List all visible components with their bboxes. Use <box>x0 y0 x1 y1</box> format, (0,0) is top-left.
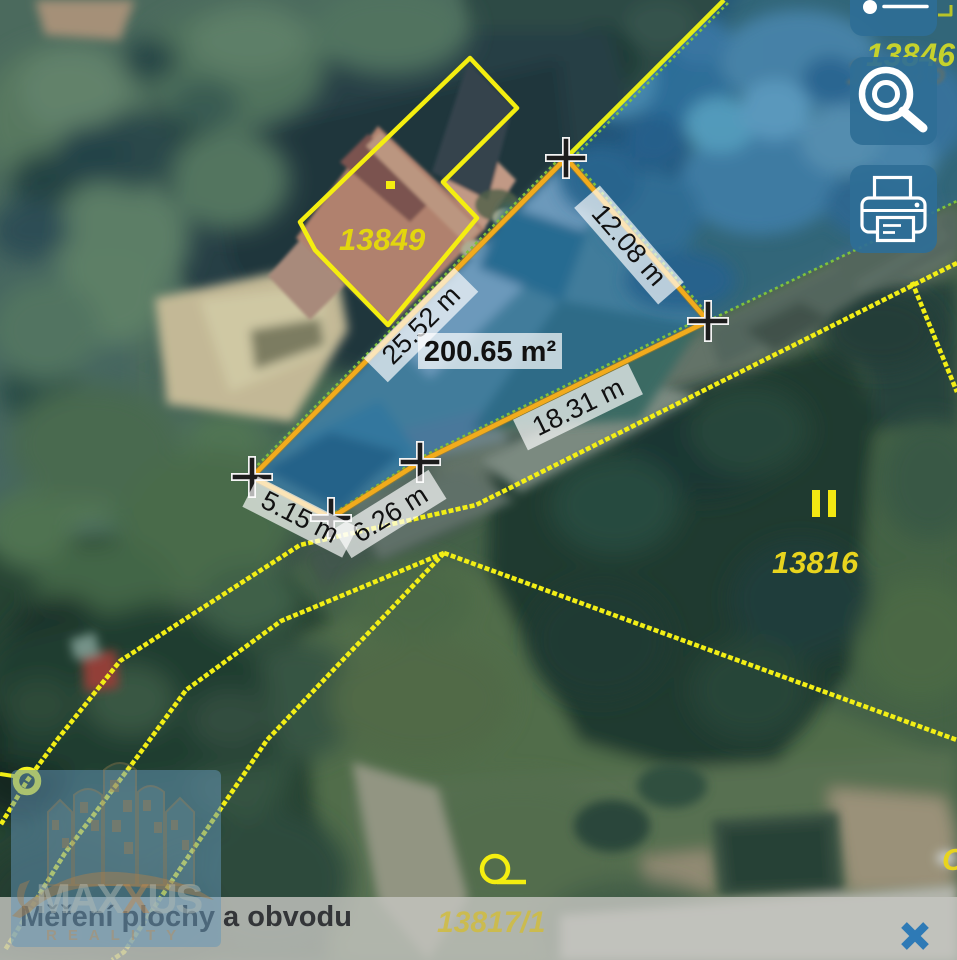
svg-text:MAXXUS: MAXXUS <box>36 875 202 922</box>
svg-text:13817/1: 13817/1 <box>437 906 545 939</box>
svg-text:C: C <box>942 842 957 877</box>
svg-text:200.65 m²: 200.65 m² <box>424 336 557 368</box>
svg-text:13849: 13849 <box>339 222 426 257</box>
svg-text:13816: 13816 <box>772 545 859 580</box>
svg-text:REALITY: REALITY <box>46 927 187 944</box>
